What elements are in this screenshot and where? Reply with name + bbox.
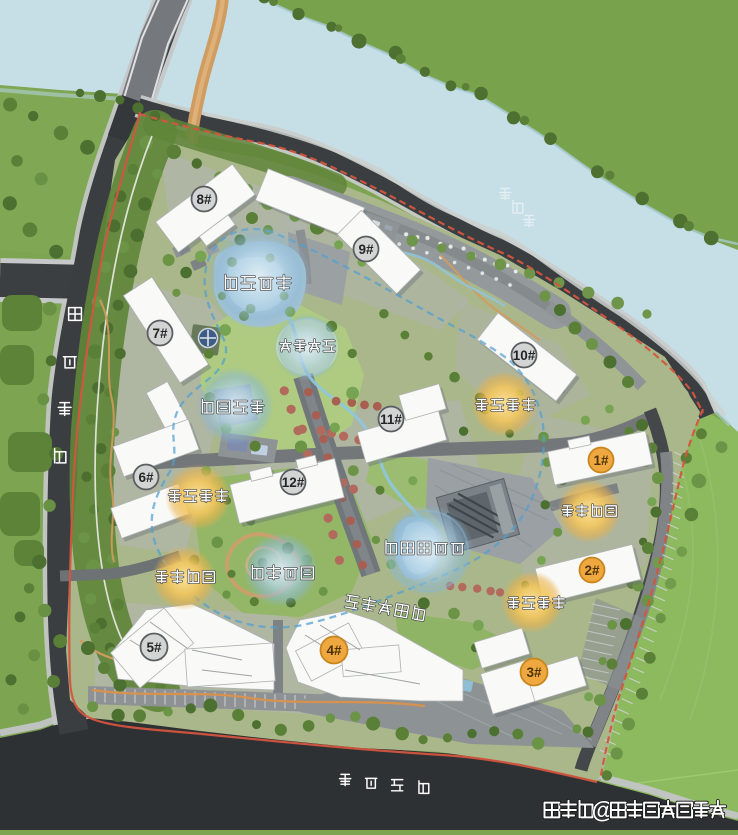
svg-text:2#: 2# — [584, 563, 600, 578]
svg-text:9#: 9# — [358, 242, 374, 257]
svg-text:1#: 1# — [593, 453, 609, 468]
svg-text:6#: 6# — [138, 470, 154, 485]
svg-text:8#: 8# — [196, 192, 212, 207]
svg-text:7#: 7# — [152, 326, 168, 341]
svg-text:5#: 5# — [146, 640, 162, 655]
svg-text:3#: 3# — [526, 665, 542, 680]
svg-text:12#: 12# — [282, 475, 305, 490]
svg-text:10#: 10# — [513, 348, 536, 363]
svg-text:11#: 11# — [380, 412, 402, 427]
svg-text:4#: 4# — [326, 643, 342, 658]
